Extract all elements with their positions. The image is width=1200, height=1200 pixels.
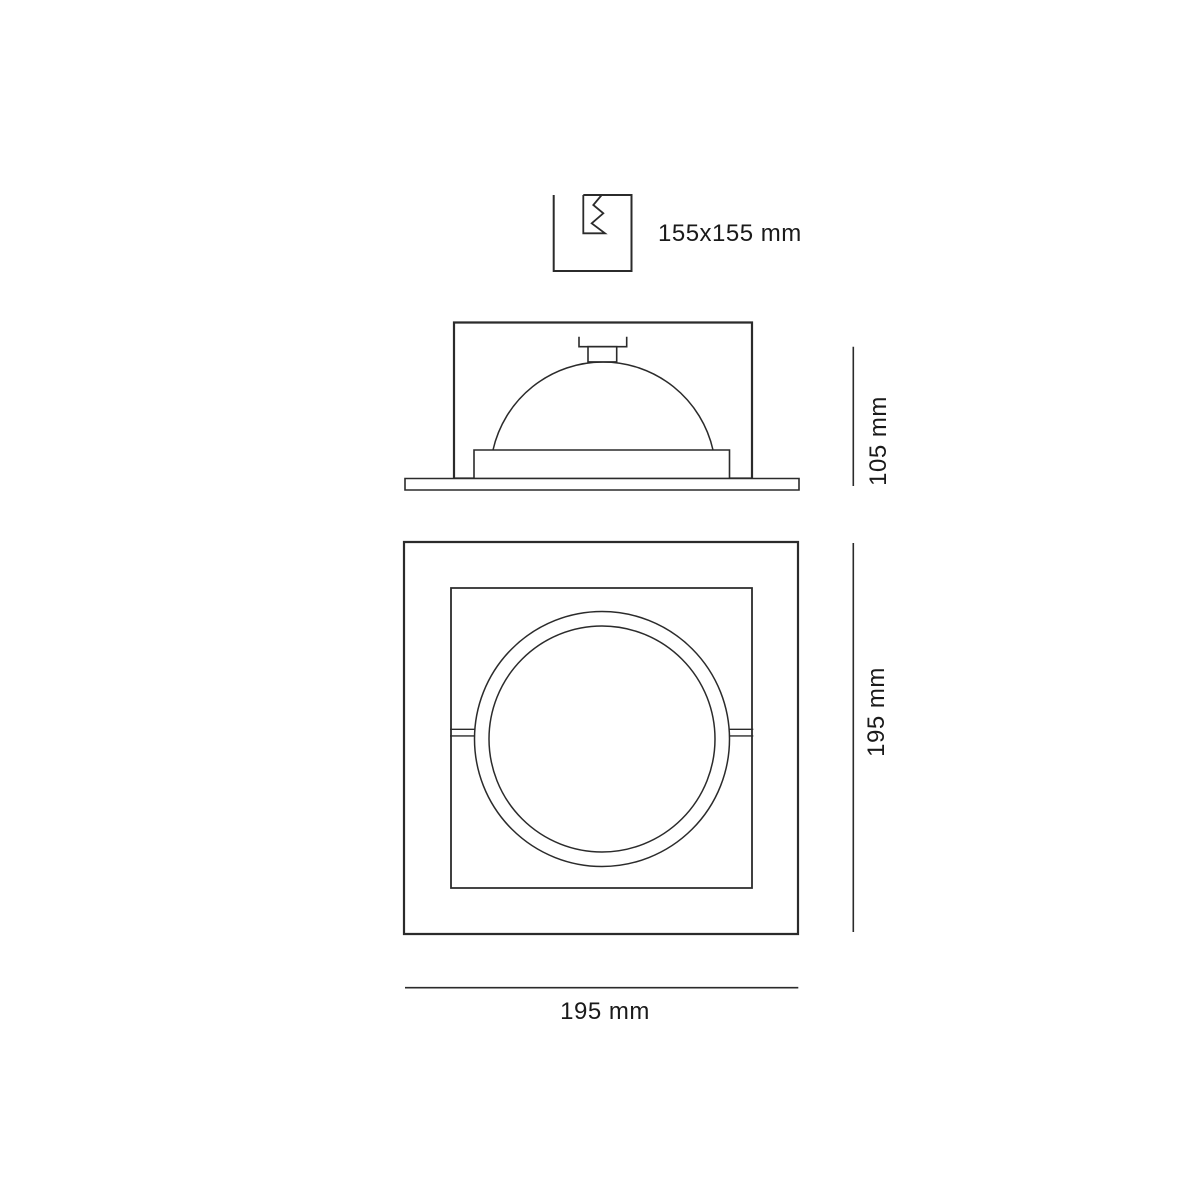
outer-frame [404, 542, 798, 934]
inner-ring [489, 626, 715, 852]
spec-drawing-page: 155x155 mm 105 mm 195 mm 195 mm [0, 0, 1200, 1200]
side-height-label: 105 mm [865, 396, 893, 486]
cutout-size-label: 155x155 mm [658, 220, 802, 248]
base-block [474, 450, 730, 479]
outer-ring [475, 612, 730, 867]
mounting-bracket [579, 337, 627, 347]
cutout-symbol [554, 195, 632, 271]
front-height-label: 195 mm [863, 667, 891, 757]
side-view [405, 323, 853, 491]
dome-arc [493, 362, 713, 450]
neck-connector [588, 347, 617, 362]
cutout-zigzag-flap [583, 195, 605, 233]
front-view [404, 542, 853, 988]
left-pivot-tab [450, 729, 475, 736]
right-pivot-tab [729, 729, 753, 736]
trim-flange [405, 479, 799, 491]
front-width-label: 195 mm [560, 998, 650, 1026]
inner-frame [451, 588, 752, 888]
